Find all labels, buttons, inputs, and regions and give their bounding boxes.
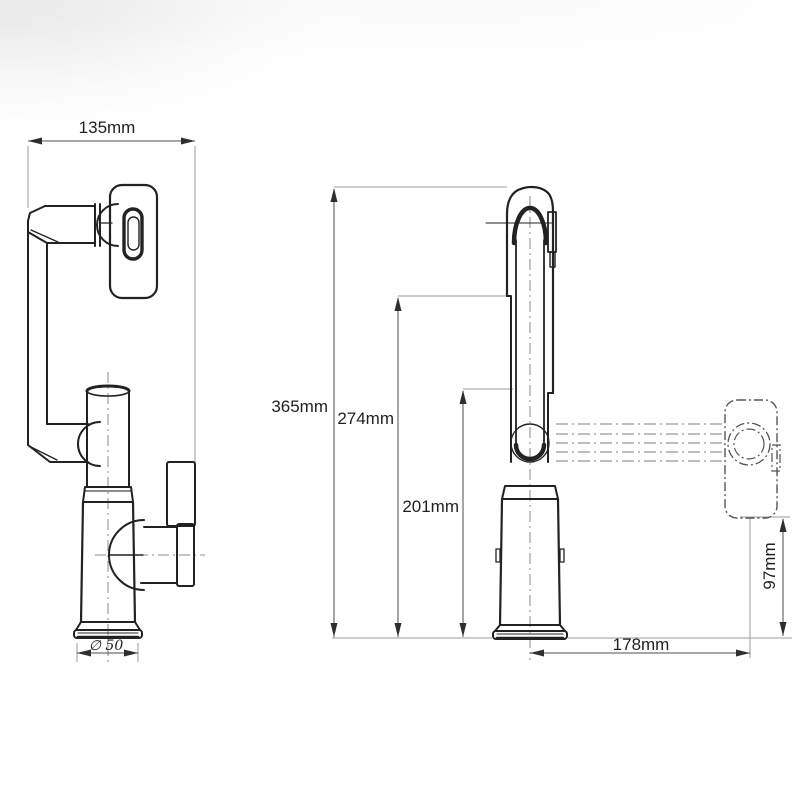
spout-arm: [28, 206, 95, 243]
handle-lever: [167, 462, 195, 526]
alternate-spray-head: [725, 400, 780, 518]
centerlines: [95, 196, 724, 662]
spray-slot-inner: [128, 217, 139, 250]
dim-label-97mm: 97mm: [760, 542, 779, 589]
setscrew-right: [560, 549, 564, 562]
dimension-labels: 135mm 365mm 274mm 201mm 178mm 97mm ∅ 50: [79, 118, 779, 654]
housing-right-step: [548, 393, 553, 462]
setscrew-left: [496, 549, 500, 562]
alternate-head-circle-inner: [734, 429, 764, 459]
dim-label-201mm: 201mm: [402, 497, 459, 516]
drawing-canvas: 135mm 365mm 274mm 201mm 178mm 97mm ∅ 50: [0, 0, 800, 800]
housing-left-step: [507, 296, 511, 462]
dim-label-base-diameter: ∅ 50: [89, 638, 124, 654]
spout-column: [28, 232, 47, 445]
dim-label-365mm: 365mm: [271, 397, 328, 416]
dim-label-274mm: 274mm: [337, 409, 394, 428]
technical-drawing: 135mm 365mm 274mm 201mm 178mm 97mm ∅ 50: [0, 0, 800, 800]
lower-ball-joint: [78, 422, 100, 466]
front-view: [486, 187, 567, 639]
alternate-head-tab: [772, 445, 780, 471]
dim-label-135mm: 135mm: [79, 118, 136, 137]
side-view-centerlines: [95, 372, 205, 662]
spray-head-side: [110, 185, 157, 298]
side-view: [28, 185, 195, 638]
projection-lines: [556, 424, 724, 461]
dim-label-178mm: 178mm: [613, 635, 670, 654]
